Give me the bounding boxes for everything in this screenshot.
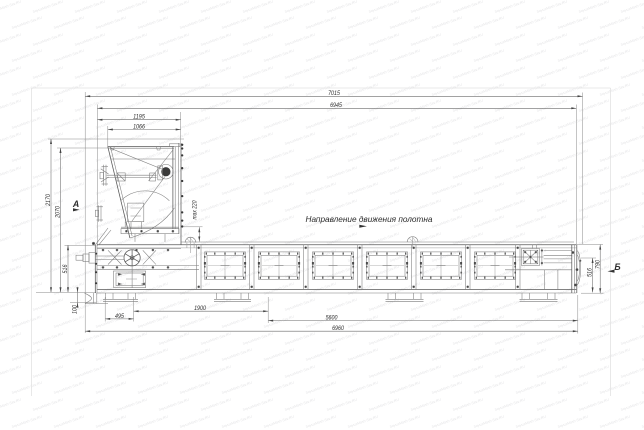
svg-text:SoyuzMash-Sev.RU: SoyuzMash-Sev.RU bbox=[137, 415, 169, 429]
svg-text:516: 516 bbox=[62, 264, 69, 273]
svg-text:SoyuzMash-Sev.RU: SoyuzMash-Sev.RU bbox=[389, 315, 421, 329]
svg-text:SoyuzMash-Sev.RU: SoyuzMash-Sev.RU bbox=[536, 298, 568, 312]
svg-text:SoyuzMash-Sev.RU: SoyuzMash-Sev.RU bbox=[326, 33, 358, 47]
svg-text:6960: 6960 bbox=[332, 325, 344, 332]
svg-text:SoyuzMash-Sev.RU: SoyuzMash-Sev.RU bbox=[242, 66, 274, 80]
svg-text:SoyuzMash-Sev.RU: SoyuzMash-Sev.RU bbox=[221, 415, 253, 429]
svg-text:SoyuzMash-Sev.RU: SoyuzMash-Sev.RU bbox=[620, 332, 644, 346]
svg-text:SoyuzMash-Sev.RU: SoyuzMash-Sev.RU bbox=[284, 166, 316, 180]
svg-text:SoyuzMash-Sev.RU: SoyuzMash-Sev.RU bbox=[74, 298, 106, 312]
svg-text:SoyuzMash-Sev.RU: SoyuzMash-Sev.RU bbox=[452, 365, 484, 379]
svg-text:SoyuzMash-Sev.RU: SoyuzMash-Sev.RU bbox=[263, 16, 295, 30]
svg-text:SoyuzMash-Sev.RU: SoyuzMash-Sev.RU bbox=[515, 415, 547, 429]
svg-text:SoyuzMash-Sev.RU: SoyuzMash-Sev.RU bbox=[200, 398, 232, 412]
svg-text:SoyuzMash-Sev.RU: SoyuzMash-Sev.RU bbox=[221, 315, 253, 329]
svg-text:SoyuzMash-Sev.RU: SoyuzMash-Sev.RU bbox=[116, 33, 148, 47]
svg-text:SoyuzMash-Sev.RU: SoyuzMash-Sev.RU bbox=[557, 215, 589, 229]
svg-text:SoyuzMash-Sev.RU: SoyuzMash-Sev.RU bbox=[599, 116, 631, 130]
svg-text:SoyuzMash-Sev.RU: SoyuzMash-Sev.RU bbox=[347, 16, 379, 30]
svg-text:SoyuzMash-Sev.RU: SoyuzMash-Sev.RU bbox=[578, 232, 610, 246]
svg-text:SoyuzMash-Sev.RU: SoyuzMash-Sev.RU bbox=[158, 0, 190, 14]
svg-text:SoyuzMash-Sev.RU: SoyuzMash-Sev.RU bbox=[32, 99, 64, 113]
svg-text:SoyuzMash-Sev.RU: SoyuzMash-Sev.RU bbox=[263, 381, 295, 395]
svg-text:SoyuzMash-Sev.RU: SoyuzMash-Sev.RU bbox=[620, 33, 644, 47]
svg-text:SoyuzMash-Sev.RU: SoyuzMash-Sev.RU bbox=[305, 282, 337, 296]
svg-text:SoyuzMash-Sev.RU: SoyuzMash-Sev.RU bbox=[305, 415, 337, 429]
svg-text:SoyuzMash-Sev.RU: SoyuzMash-Sev.RU bbox=[368, 232, 400, 246]
svg-text:SoyuzMash-Sev.RU: SoyuzMash-Sev.RU bbox=[242, 398, 274, 412]
svg-text:SoyuzMash-Sev.RU: SoyuzMash-Sev.RU bbox=[431, 83, 463, 97]
svg-text:SoyuzMash-Sev.RU: SoyuzMash-Sev.RU bbox=[431, 381, 463, 395]
svg-text:SoyuzMash-Sev.RU: SoyuzMash-Sev.RU bbox=[0, 215, 1, 229]
svg-text:SoyuzMash-Sev.RU: SoyuzMash-Sev.RU bbox=[326, 132, 358, 146]
svg-text:SoyuzMash-Sev.RU: SoyuzMash-Sev.RU bbox=[431, 116, 463, 130]
svg-text:SoyuzMash-Sev.RU: SoyuzMash-Sev.RU bbox=[599, 16, 631, 30]
svg-text:SoyuzMash-Sev.RU: SoyuzMash-Sev.RU bbox=[431, 16, 463, 30]
svg-text:SoyuzMash-Sev.RU: SoyuzMash-Sev.RU bbox=[179, 49, 211, 63]
svg-text:SoyuzMash-Sev.RU: SoyuzMash-Sev.RU bbox=[11, 116, 43, 130]
svg-text:SoyuzMash-Sev.RU: SoyuzMash-Sev.RU bbox=[452, 99, 484, 113]
svg-text:SoyuzMash-Sev.RU: SoyuzMash-Sev.RU bbox=[494, 33, 526, 47]
svg-text:SoyuzMash-Sev.RU: SoyuzMash-Sev.RU bbox=[473, 16, 505, 30]
svg-text:SoyuzMash-Sev.RU: SoyuzMash-Sev.RU bbox=[368, 365, 400, 379]
svg-text:SoyuzMash-Sev.RU: SoyuzMash-Sev.RU bbox=[536, 398, 568, 412]
svg-text:SoyuzMash-Sev.RU: SoyuzMash-Sev.RU bbox=[53, 16, 85, 30]
svg-text:SoyuzMash-Sev.RU: SoyuzMash-Sev.RU bbox=[620, 166, 644, 180]
svg-text:SoyuzMash-Sev.RU: SoyuzMash-Sev.RU bbox=[32, 33, 64, 47]
svg-text:SoyuzMash-Sev.RU: SoyuzMash-Sev.RU bbox=[200, 166, 232, 180]
svg-text:SoyuzMash-Sev.RU: SoyuzMash-Sev.RU bbox=[473, 348, 505, 362]
svg-text:SoyuzMash-Sev.RU: SoyuzMash-Sev.RU bbox=[557, 315, 589, 329]
svg-text:SoyuzMash-Sev.RU: SoyuzMash-Sev.RU bbox=[0, 149, 1, 163]
svg-text:SoyuzMash-Sev.RU: SoyuzMash-Sev.RU bbox=[0, 282, 1, 296]
svg-text:SoyuzMash-Sev.RU: SoyuzMash-Sev.RU bbox=[536, 66, 568, 80]
svg-text:SoyuzMash-Sev.RU: SoyuzMash-Sev.RU bbox=[326, 166, 358, 180]
svg-text:SoyuzMash-Sev.RU: SoyuzMash-Sev.RU bbox=[284, 398, 316, 412]
svg-text:SoyuzMash-Sev.RU: SoyuzMash-Sev.RU bbox=[263, 315, 295, 329]
svg-text:SoyuzMash-Sev.RU: SoyuzMash-Sev.RU bbox=[557, 83, 589, 97]
svg-text:SoyuzMash-Sev.RU: SoyuzMash-Sev.RU bbox=[347, 49, 379, 63]
svg-text:SoyuzMash-Sev.RU: SoyuzMash-Sev.RU bbox=[431, 149, 463, 163]
svg-text:SoyuzMash-Sev.RU: SoyuzMash-Sev.RU bbox=[578, 166, 610, 180]
svg-text:SoyuzMash-Sev.RU: SoyuzMash-Sev.RU bbox=[0, 99, 22, 113]
svg-text:SoyuzMash-Sev.RU: SoyuzMash-Sev.RU bbox=[326, 66, 358, 80]
svg-text:SoyuzMash-Sev.RU: SoyuzMash-Sev.RU bbox=[515, 149, 547, 163]
svg-text:SoyuzMash-Sev.RU: SoyuzMash-Sev.RU bbox=[305, 49, 337, 63]
svg-text:SoyuzMash-Sev.RU: SoyuzMash-Sev.RU bbox=[599, 381, 631, 395]
svg-text:SoyuzMash-Sev.RU: SoyuzMash-Sev.RU bbox=[368, 99, 400, 113]
svg-text:SoyuzMash-Sev.RU: SoyuzMash-Sev.RU bbox=[0, 16, 1, 30]
svg-text:SoyuzMash-Sev.RU: SoyuzMash-Sev.RU bbox=[74, 33, 106, 47]
svg-text:SoyuzMash-Sev.RU: SoyuzMash-Sev.RU bbox=[494, 398, 526, 412]
svg-text:SoyuzMash-Sev.RU: SoyuzMash-Sev.RU bbox=[305, 149, 337, 163]
svg-text:SoyuzMash-Sev.RU: SoyuzMash-Sev.RU bbox=[11, 315, 43, 329]
svg-text:SoyuzMash-Sev.RU: SoyuzMash-Sev.RU bbox=[0, 49, 1, 63]
svg-text:SoyuzMash-Sev.RU: SoyuzMash-Sev.RU bbox=[242, 132, 274, 146]
svg-text:SoyuzMash-Sev.RU: SoyuzMash-Sev.RU bbox=[557, 49, 589, 63]
svg-text:SoyuzMash-Sev.RU: SoyuzMash-Sev.RU bbox=[599, 49, 631, 63]
svg-text:SoyuzMash-Sev.RU: SoyuzMash-Sev.RU bbox=[494, 0, 526, 14]
svg-text:SoyuzMash-Sev.RU: SoyuzMash-Sev.RU bbox=[452, 66, 484, 80]
svg-text:SoyuzMash-Sev.RU: SoyuzMash-Sev.RU bbox=[599, 315, 631, 329]
svg-text:SoyuzMash-Sev.RU: SoyuzMash-Sev.RU bbox=[599, 215, 631, 229]
svg-text:SoyuzMash-Sev.RU: SoyuzMash-Sev.RU bbox=[179, 149, 211, 163]
svg-text:SoyuzMash-Sev.RU: SoyuzMash-Sev.RU bbox=[326, 398, 358, 412]
svg-text:SoyuzMash-Sev.RU: SoyuzMash-Sev.RU bbox=[368, 0, 400, 14]
svg-text:SoyuzMash-Sev.RU: SoyuzMash-Sev.RU bbox=[494, 232, 526, 246]
svg-text:SoyuzMash-Sev.RU: SoyuzMash-Sev.RU bbox=[0, 132, 22, 146]
svg-text:SoyuzMash-Sev.RU: SoyuzMash-Sev.RU bbox=[158, 265, 190, 279]
svg-text:SoyuzMash-Sev.RU: SoyuzMash-Sev.RU bbox=[95, 83, 127, 97]
svg-text:SoyuzMash-Sev.RU: SoyuzMash-Sev.RU bbox=[0, 66, 22, 80]
svg-text:SoyuzMash-Sev.RU: SoyuzMash-Sev.RU bbox=[11, 49, 43, 63]
svg-text:SoyuzMash-Sev.RU: SoyuzMash-Sev.RU bbox=[200, 199, 232, 213]
svg-text:SoyuzMash-Sev.RU: SoyuzMash-Sev.RU bbox=[473, 116, 505, 130]
svg-text:SoyuzMash-Sev.RU: SoyuzMash-Sev.RU bbox=[263, 415, 295, 429]
svg-text:SoyuzMash-Sev.RU: SoyuzMash-Sev.RU bbox=[410, 398, 442, 412]
svg-text:SoyuzMash-Sev.RU: SoyuzMash-Sev.RU bbox=[116, 298, 148, 312]
svg-text:SoyuzMash-Sev.RU: SoyuzMash-Sev.RU bbox=[557, 282, 589, 296]
svg-text:SoyuzMash-Sev.RU: SoyuzMash-Sev.RU bbox=[158, 66, 190, 80]
svg-text:SoyuzMash-Sev.RU: SoyuzMash-Sev.RU bbox=[137, 16, 169, 30]
svg-text:SoyuzMash-Sev.RU: SoyuzMash-Sev.RU bbox=[32, 66, 64, 80]
svg-text:Направление движения полотна: Направление движения полотна bbox=[306, 214, 433, 224]
svg-text:SoyuzMash-Sev.RU: SoyuzMash-Sev.RU bbox=[368, 332, 400, 346]
svg-text:SoyuzMash-Sev.RU: SoyuzMash-Sev.RU bbox=[410, 132, 442, 146]
svg-text:SoyuzMash-Sev.RU: SoyuzMash-Sev.RU bbox=[347, 149, 379, 163]
svg-text:SoyuzMash-Sev.RU: SoyuzMash-Sev.RU bbox=[599, 149, 631, 163]
svg-text:SoyuzMash-Sev.RU: SoyuzMash-Sev.RU bbox=[347, 116, 379, 130]
svg-text:SoyuzMash-Sev.RU: SoyuzMash-Sev.RU bbox=[284, 332, 316, 346]
svg-text:SoyuzMash-Sev.RU: SoyuzMash-Sev.RU bbox=[389, 16, 421, 30]
svg-text:SoyuzMash-Sev.RU: SoyuzMash-Sev.RU bbox=[578, 33, 610, 47]
svg-text:SoyuzMash-Sev.RU: SoyuzMash-Sev.RU bbox=[515, 16, 547, 30]
svg-text:SoyuzMash-Sev.RU: SoyuzMash-Sev.RU bbox=[263, 348, 295, 362]
svg-text:SoyuzMash-Sev.RU: SoyuzMash-Sev.RU bbox=[137, 83, 169, 97]
svg-text:SoyuzMash-Sev.RU: SoyuzMash-Sev.RU bbox=[620, 132, 644, 146]
svg-text:SoyuzMash-Sev.RU: SoyuzMash-Sev.RU bbox=[431, 415, 463, 429]
svg-text:max 220: max 220 bbox=[193, 200, 199, 220]
svg-text:SoyuzMash-Sev.RU: SoyuzMash-Sev.RU bbox=[179, 348, 211, 362]
svg-text:SoyuzMash-Sev.RU: SoyuzMash-Sev.RU bbox=[95, 49, 127, 63]
svg-text:SoyuzMash-Sev.RU: SoyuzMash-Sev.RU bbox=[368, 33, 400, 47]
svg-text:SoyuzMash-Sev.RU: SoyuzMash-Sev.RU bbox=[368, 298, 400, 312]
svg-text:SoyuzMash-Sev.RU: SoyuzMash-Sev.RU bbox=[263, 49, 295, 63]
svg-text:SoyuzMash-Sev.RU: SoyuzMash-Sev.RU bbox=[431, 282, 463, 296]
svg-text:SoyuzMash-Sev.RU: SoyuzMash-Sev.RU bbox=[578, 199, 610, 213]
svg-text:SoyuzMash-Sev.RU: SoyuzMash-Sev.RU bbox=[137, 182, 169, 196]
svg-text:SoyuzMash-Sev.RU: SoyuzMash-Sev.RU bbox=[473, 83, 505, 97]
svg-text:SoyuzMash-Sev.RU: SoyuzMash-Sev.RU bbox=[515, 116, 547, 130]
svg-text:SoyuzMash-Sev.RU: SoyuzMash-Sev.RU bbox=[578, 398, 610, 412]
svg-text:1900: 1900 bbox=[194, 305, 206, 312]
svg-text:SoyuzMash-Sev.RU: SoyuzMash-Sev.RU bbox=[326, 332, 358, 346]
svg-text:SoyuzMash-Sev.RU: SoyuzMash-Sev.RU bbox=[242, 33, 274, 47]
svg-text:SoyuzMash-Sev.RU: SoyuzMash-Sev.RU bbox=[305, 249, 337, 263]
svg-text:SoyuzMash-Sev.RU: SoyuzMash-Sev.RU bbox=[326, 232, 358, 246]
svg-text:SoyuzMash-Sev.RU: SoyuzMash-Sev.RU bbox=[557, 381, 589, 395]
svg-text:SoyuzMash-Sev.RU: SoyuzMash-Sev.RU bbox=[242, 199, 274, 213]
svg-text:SoyuzMash-Sev.RU: SoyuzMash-Sev.RU bbox=[32, 398, 64, 412]
svg-text:SoyuzMash-Sev.RU: SoyuzMash-Sev.RU bbox=[389, 49, 421, 63]
svg-text:SoyuzMash-Sev.RU: SoyuzMash-Sev.RU bbox=[221, 49, 253, 63]
svg-text:SoyuzMash-Sev.RU: SoyuzMash-Sev.RU bbox=[0, 365, 22, 379]
svg-text:SoyuzMash-Sev.RU: SoyuzMash-Sev.RU bbox=[431, 49, 463, 63]
svg-text:SoyuzMash-Sev.RU: SoyuzMash-Sev.RU bbox=[179, 16, 211, 30]
svg-text:SoyuzMash-Sev.RU: SoyuzMash-Sev.RU bbox=[53, 381, 85, 395]
svg-text:7015: 7015 bbox=[328, 90, 340, 97]
svg-text:SoyuzMash-Sev.RU: SoyuzMash-Sev.RU bbox=[200, 132, 232, 146]
svg-text:SoyuzMash-Sev.RU: SoyuzMash-Sev.RU bbox=[389, 83, 421, 97]
svg-text:SoyuzMash-Sev.RU: SoyuzMash-Sev.RU bbox=[74, 365, 106, 379]
svg-text:SoyuzMash-Sev.RU: SoyuzMash-Sev.RU bbox=[116, 398, 148, 412]
svg-text:SoyuzMash-Sev.RU: SoyuzMash-Sev.RU bbox=[95, 215, 127, 229]
svg-text:Б: Б bbox=[614, 262, 620, 272]
svg-text:SoyuzMash-Sev.RU: SoyuzMash-Sev.RU bbox=[200, 232, 232, 246]
svg-text:SoyuzMash-Sev.RU: SoyuzMash-Sev.RU bbox=[0, 298, 22, 312]
svg-text:SoyuzMash-Sev.RU: SoyuzMash-Sev.RU bbox=[53, 249, 85, 263]
svg-text:SoyuzMash-Sev.RU: SoyuzMash-Sev.RU bbox=[284, 66, 316, 80]
svg-text:SoyuzMash-Sev.RU: SoyuzMash-Sev.RU bbox=[32, 166, 64, 180]
svg-text:SoyuzMash-Sev.RU: SoyuzMash-Sev.RU bbox=[452, 398, 484, 412]
svg-text:SoyuzMash-Sev.RU: SoyuzMash-Sev.RU bbox=[347, 348, 379, 362]
svg-text:SoyuzMash-Sev.RU: SoyuzMash-Sev.RU bbox=[242, 166, 274, 180]
svg-text:SoyuzMash-Sev.RU: SoyuzMash-Sev.RU bbox=[158, 298, 190, 312]
svg-text:SoyuzMash-Sev.RU: SoyuzMash-Sev.RU bbox=[515, 381, 547, 395]
svg-text:SoyuzMash-Sev.RU: SoyuzMash-Sev.RU bbox=[368, 132, 400, 146]
svg-text:SoyuzMash-Sev.RU: SoyuzMash-Sev.RU bbox=[599, 348, 631, 362]
svg-text:495: 495 bbox=[115, 313, 124, 320]
svg-text:SoyuzMash-Sev.RU: SoyuzMash-Sev.RU bbox=[494, 298, 526, 312]
svg-text:SoyuzMash-Sev.RU: SoyuzMash-Sev.RU bbox=[95, 415, 127, 429]
svg-text:SoyuzMash-Sev.RU: SoyuzMash-Sev.RU bbox=[179, 315, 211, 329]
svg-text:SoyuzMash-Sev.RU: SoyuzMash-Sev.RU bbox=[0, 166, 22, 180]
svg-text:SoyuzMash-Sev.RU: SoyuzMash-Sev.RU bbox=[32, 232, 64, 246]
svg-text:SoyuzMash-Sev.RU: SoyuzMash-Sev.RU bbox=[473, 182, 505, 196]
svg-text:SoyuzMash-Sev.RU: SoyuzMash-Sev.RU bbox=[578, 132, 610, 146]
svg-text:SoyuzMash-Sev.RU: SoyuzMash-Sev.RU bbox=[179, 381, 211, 395]
svg-text:SoyuzMash-Sev.RU: SoyuzMash-Sev.RU bbox=[158, 99, 190, 113]
svg-text:SoyuzMash-Sev.RU: SoyuzMash-Sev.RU bbox=[74, 0, 106, 14]
svg-text:SoyuzMash-Sev.RU: SoyuzMash-Sev.RU bbox=[53, 415, 85, 429]
svg-text:SoyuzMash-Sev.RU: SoyuzMash-Sev.RU bbox=[578, 66, 610, 80]
svg-text:SoyuzMash-Sev.RU: SoyuzMash-Sev.RU bbox=[158, 365, 190, 379]
svg-text:SoyuzMash-Sev.RU: SoyuzMash-Sev.RU bbox=[368, 166, 400, 180]
svg-text:SoyuzMash-Sev.RU: SoyuzMash-Sev.RU bbox=[221, 215, 253, 229]
svg-text:SoyuzMash-Sev.RU: SoyuzMash-Sev.RU bbox=[32, 365, 64, 379]
svg-text:SoyuzMash-Sev.RU: SoyuzMash-Sev.RU bbox=[410, 66, 442, 80]
svg-text:А: А bbox=[72, 199, 79, 209]
svg-text:SoyuzMash-Sev.RU: SoyuzMash-Sev.RU bbox=[53, 149, 85, 163]
svg-text:SoyuzMash-Sev.RU: SoyuzMash-Sev.RU bbox=[11, 215, 43, 229]
svg-text:SoyuzMash-Sev.RU: SoyuzMash-Sev.RU bbox=[116, 66, 148, 80]
svg-text:SoyuzMash-Sev.RU: SoyuzMash-Sev.RU bbox=[368, 66, 400, 80]
svg-text:SoyuzMash-Sev.RU: SoyuzMash-Sev.RU bbox=[263, 182, 295, 196]
svg-text:SoyuzMash-Sev.RU: SoyuzMash-Sev.RU bbox=[179, 249, 211, 263]
svg-text:SoyuzMash-Sev.RU: SoyuzMash-Sev.RU bbox=[620, 298, 644, 312]
svg-text:SoyuzMash-Sev.RU: SoyuzMash-Sev.RU bbox=[494, 132, 526, 146]
svg-text:SoyuzMash-Sev.RU: SoyuzMash-Sev.RU bbox=[473, 381, 505, 395]
svg-text:SoyuzMash-Sev.RU: SoyuzMash-Sev.RU bbox=[536, 265, 568, 279]
svg-text:SoyuzMash-Sev.RU: SoyuzMash-Sev.RU bbox=[0, 33, 22, 47]
svg-text:SoyuzMash-Sev.RU: SoyuzMash-Sev.RU bbox=[347, 415, 379, 429]
svg-text:SoyuzMash-Sev.RU: SoyuzMash-Sev.RU bbox=[494, 365, 526, 379]
svg-text:SoyuzMash-Sev.RU: SoyuzMash-Sev.RU bbox=[389, 182, 421, 196]
svg-text:SoyuzMash-Sev.RU: SoyuzMash-Sev.RU bbox=[284, 232, 316, 246]
svg-text:SoyuzMash-Sev.RU: SoyuzMash-Sev.RU bbox=[158, 332, 190, 346]
svg-text:SoyuzMash-Sev.RU: SoyuzMash-Sev.RU bbox=[116, 0, 148, 14]
svg-text:SoyuzMash-Sev.RU: SoyuzMash-Sev.RU bbox=[389, 149, 421, 163]
svg-text:SoyuzMash-Sev.RU: SoyuzMash-Sev.RU bbox=[536, 99, 568, 113]
svg-text:SoyuzMash-Sev.RU: SoyuzMash-Sev.RU bbox=[74, 66, 106, 80]
svg-text:1195: 1195 bbox=[133, 114, 145, 121]
svg-text:SoyuzMash-Sev.RU: SoyuzMash-Sev.RU bbox=[578, 99, 610, 113]
svg-text:SoyuzMash-Sev.RU: SoyuzMash-Sev.RU bbox=[431, 249, 463, 263]
svg-text:SoyuzMash-Sev.RU: SoyuzMash-Sev.RU bbox=[620, 66, 644, 80]
svg-text:SoyuzMash-Sev.RU: SoyuzMash-Sev.RU bbox=[536, 365, 568, 379]
svg-text:SoyuzMash-Sev.RU: SoyuzMash-Sev.RU bbox=[179, 415, 211, 429]
svg-text:SoyuzMash-Sev.RU: SoyuzMash-Sev.RU bbox=[536, 132, 568, 146]
svg-text:SoyuzMash-Sev.RU: SoyuzMash-Sev.RU bbox=[263, 116, 295, 130]
svg-text:SoyuzMash-Sev.RU: SoyuzMash-Sev.RU bbox=[347, 381, 379, 395]
svg-text:SoyuzMash-Sev.RU: SoyuzMash-Sev.RU bbox=[473, 215, 505, 229]
svg-text:SoyuzMash-Sev.RU: SoyuzMash-Sev.RU bbox=[95, 16, 127, 30]
svg-text:SoyuzMash-Sev.RU: SoyuzMash-Sev.RU bbox=[410, 298, 442, 312]
svg-text:5600: 5600 bbox=[326, 315, 338, 322]
svg-text:SoyuzMash-Sev.RU: SoyuzMash-Sev.RU bbox=[578, 332, 610, 346]
svg-text:SoyuzMash-Sev.RU: SoyuzMash-Sev.RU bbox=[473, 249, 505, 263]
svg-text:SoyuzMash-Sev.RU: SoyuzMash-Sev.RU bbox=[263, 149, 295, 163]
svg-text:SoyuzMash-Sev.RU: SoyuzMash-Sev.RU bbox=[0, 116, 1, 130]
svg-text:SoyuzMash-Sev.RU: SoyuzMash-Sev.RU bbox=[95, 381, 127, 395]
svg-text:SoyuzMash-Sev.RU: SoyuzMash-Sev.RU bbox=[389, 415, 421, 429]
svg-text:6945: 6945 bbox=[330, 102, 342, 109]
svg-text:SoyuzMash-Sev.RU: SoyuzMash-Sev.RU bbox=[494, 166, 526, 180]
svg-text:SoyuzMash-Sev.RU: SoyuzMash-Sev.RU bbox=[620, 199, 644, 213]
svg-text:SoyuzMash-Sev.RU: SoyuzMash-Sev.RU bbox=[536, 33, 568, 47]
svg-text:SoyuzMash-Sev.RU: SoyuzMash-Sev.RU bbox=[305, 182, 337, 196]
svg-text:SoyuzMash-Sev.RU: SoyuzMash-Sev.RU bbox=[452, 132, 484, 146]
svg-text:SoyuzMash-Sev.RU: SoyuzMash-Sev.RU bbox=[137, 315, 169, 329]
svg-text:SoyuzMash-Sev.RU: SoyuzMash-Sev.RU bbox=[620, 265, 644, 279]
svg-text:SoyuzMash-Sev.RU: SoyuzMash-Sev.RU bbox=[74, 332, 106, 346]
svg-text:SoyuzMash-Sev.RU: SoyuzMash-Sev.RU bbox=[11, 249, 43, 263]
svg-text:SoyuzMash-Sev.RU: SoyuzMash-Sev.RU bbox=[326, 0, 358, 14]
svg-text:SoyuzMash-Sev.RU: SoyuzMash-Sev.RU bbox=[578, 298, 610, 312]
svg-text:SoyuzMash-Sev.RU: SoyuzMash-Sev.RU bbox=[347, 282, 379, 296]
svg-text:SoyuzMash-Sev.RU: SoyuzMash-Sev.RU bbox=[137, 348, 169, 362]
svg-text:SoyuzMash-Sev.RU: SoyuzMash-Sev.RU bbox=[221, 249, 253, 263]
svg-text:SoyuzMash-Sev.RU: SoyuzMash-Sev.RU bbox=[326, 298, 358, 312]
svg-text:SoyuzMash-Sev.RU: SoyuzMash-Sev.RU bbox=[74, 99, 106, 113]
svg-text:SoyuzMash-Sev.RU: SoyuzMash-Sev.RU bbox=[536, 0, 568, 14]
svg-text:SoyuzMash-Sev.RU: SoyuzMash-Sev.RU bbox=[620, 365, 644, 379]
svg-text:SoyuzMash-Sev.RU: SoyuzMash-Sev.RU bbox=[284, 132, 316, 146]
svg-text:SoyuzMash-Sev.RU: SoyuzMash-Sev.RU bbox=[368, 265, 400, 279]
svg-text:SoyuzMash-Sev.RU: SoyuzMash-Sev.RU bbox=[263, 83, 295, 97]
svg-text:SoyuzMash-Sev.RU: SoyuzMash-Sev.RU bbox=[32, 265, 64, 279]
svg-text:SoyuzMash-Sev.RU: SoyuzMash-Sev.RU bbox=[536, 232, 568, 246]
svg-text:SoyuzMash-Sev.RU: SoyuzMash-Sev.RU bbox=[0, 398, 22, 412]
svg-text:SoyuzMash-Sev.RU: SoyuzMash-Sev.RU bbox=[53, 348, 85, 362]
svg-text:SoyuzMash-Sev.RU: SoyuzMash-Sev.RU bbox=[473, 415, 505, 429]
svg-text:SoyuzMash-Sev.RU: SoyuzMash-Sev.RU bbox=[410, 99, 442, 113]
svg-text:SoyuzMash-Sev.RU: SoyuzMash-Sev.RU bbox=[242, 298, 274, 312]
svg-text:SoyuzMash-Sev.RU: SoyuzMash-Sev.RU bbox=[95, 282, 127, 296]
svg-text:SoyuzMash-Sev.RU: SoyuzMash-Sev.RU bbox=[116, 332, 148, 346]
svg-text:SoyuzMash-Sev.RU: SoyuzMash-Sev.RU bbox=[0, 332, 22, 346]
svg-text:SoyuzMash-Sev.RU: SoyuzMash-Sev.RU bbox=[0, 265, 22, 279]
svg-text:SoyuzMash-Sev.RU: SoyuzMash-Sev.RU bbox=[0, 182, 1, 196]
svg-text:SoyuzMash-Sev.RU: SoyuzMash-Sev.RU bbox=[452, 0, 484, 14]
svg-text:SoyuzMash-Sev.RU: SoyuzMash-Sev.RU bbox=[389, 348, 421, 362]
svg-text:SoyuzMash-Sev.RU: SoyuzMash-Sev.RU bbox=[137, 49, 169, 63]
svg-text:SoyuzMash-Sev.RU: SoyuzMash-Sev.RU bbox=[494, 99, 526, 113]
svg-text:SoyuzMash-Sev.RU: SoyuzMash-Sev.RU bbox=[410, 265, 442, 279]
svg-text:SoyuzMash-Sev.RU: SoyuzMash-Sev.RU bbox=[452, 332, 484, 346]
svg-text:SoyuzMash-Sev.RU: SoyuzMash-Sev.RU bbox=[284, 365, 316, 379]
svg-text:SoyuzMash-Sev.RU: SoyuzMash-Sev.RU bbox=[578, 0, 610, 14]
svg-text:SoyuzMash-Sev.RU: SoyuzMash-Sev.RU bbox=[0, 415, 1, 429]
svg-text:SoyuzMash-Sev.RU: SoyuzMash-Sev.RU bbox=[368, 199, 400, 213]
svg-text:SoyuzMash-Sev.RU: SoyuzMash-Sev.RU bbox=[53, 83, 85, 97]
svg-text:SoyuzMash-Sev.RU: SoyuzMash-Sev.RU bbox=[11, 83, 43, 97]
svg-text:SoyuzMash-Sev.RU: SoyuzMash-Sev.RU bbox=[284, 199, 316, 213]
svg-text:SoyuzMash-Sev.RU: SoyuzMash-Sev.RU bbox=[494, 66, 526, 80]
svg-text:SoyuzMash-Sev.RU: SoyuzMash-Sev.RU bbox=[578, 365, 610, 379]
svg-text:SoyuzMash-Sev.RU: SoyuzMash-Sev.RU bbox=[473, 49, 505, 63]
svg-text:516: 516 bbox=[587, 268, 594, 277]
svg-text:SoyuzMash-Sev.RU: SoyuzMash-Sev.RU bbox=[620, 0, 644, 14]
svg-text:SoyuzMash-Sev.RU: SoyuzMash-Sev.RU bbox=[305, 348, 337, 362]
svg-text:1066: 1066 bbox=[133, 123, 145, 130]
svg-text:SoyuzMash-Sev.RU: SoyuzMash-Sev.RU bbox=[284, 298, 316, 312]
svg-text:SoyuzMash-Sev.RU: SoyuzMash-Sev.RU bbox=[473, 149, 505, 163]
svg-text:SoyuzMash-Sev.RU: SoyuzMash-Sev.RU bbox=[347, 83, 379, 97]
svg-text:SoyuzMash-Sev.RU: SoyuzMash-Sev.RU bbox=[242, 0, 274, 14]
svg-text:SoyuzMash-Sev.RU: SoyuzMash-Sev.RU bbox=[494, 265, 526, 279]
svg-text:SoyuzMash-Sev.RU: SoyuzMash-Sev.RU bbox=[452, 298, 484, 312]
svg-text:SoyuzMash-Sev.RU: SoyuzMash-Sev.RU bbox=[347, 249, 379, 263]
svg-text:SoyuzMash-Sev.RU: SoyuzMash-Sev.RU bbox=[452, 265, 484, 279]
svg-text:SoyuzMash-Sev.RU: SoyuzMash-Sev.RU bbox=[53, 315, 85, 329]
svg-text:SoyuzMash-Sev.RU: SoyuzMash-Sev.RU bbox=[0, 381, 1, 395]
svg-text:SoyuzMash-Sev.RU: SoyuzMash-Sev.RU bbox=[263, 282, 295, 296]
svg-text:SoyuzMash-Sev.RU: SoyuzMash-Sev.RU bbox=[305, 116, 337, 130]
svg-text:SoyuzMash-Sev.RU: SoyuzMash-Sev.RU bbox=[95, 116, 127, 130]
svg-text:SoyuzMash-Sev.RU: SoyuzMash-Sev.RU bbox=[494, 199, 526, 213]
svg-text:SoyuzMash-Sev.RU: SoyuzMash-Sev.RU bbox=[515, 182, 547, 196]
svg-text:SoyuzMash-Sev.RU: SoyuzMash-Sev.RU bbox=[347, 182, 379, 196]
svg-text:SoyuzMash-Sev.RU: SoyuzMash-Sev.RU bbox=[200, 33, 232, 47]
svg-text:SoyuzMash-Sev.RU: SoyuzMash-Sev.RU bbox=[620, 232, 644, 246]
svg-text:SoyuzMash-Sev.RU: SoyuzMash-Sev.RU bbox=[158, 33, 190, 47]
svg-text:SoyuzMash-Sev.RU: SoyuzMash-Sev.RU bbox=[347, 315, 379, 329]
svg-text:SoyuzMash-Sev.RU: SoyuzMash-Sev.RU bbox=[137, 381, 169, 395]
svg-text:SoyuzMash-Sev.RU: SoyuzMash-Sev.RU bbox=[200, 332, 232, 346]
svg-text:SoyuzMash-Sev.RU: SoyuzMash-Sev.RU bbox=[74, 232, 106, 246]
svg-text:SoyuzMash-Sev.RU: SoyuzMash-Sev.RU bbox=[74, 166, 106, 180]
svg-text:SoyuzMash-Sev.RU: SoyuzMash-Sev.RU bbox=[452, 199, 484, 213]
svg-text:SoyuzMash-Sev.RU: SoyuzMash-Sev.RU bbox=[305, 16, 337, 30]
svg-text:SoyuzMash-Sev.RU: SoyuzMash-Sev.RU bbox=[284, 99, 316, 113]
svg-text:SoyuzMash-Sev.RU: SoyuzMash-Sev.RU bbox=[0, 232, 22, 246]
svg-text:SoyuzMash-Sev.RU: SoyuzMash-Sev.RU bbox=[221, 116, 253, 130]
svg-text:SoyuzMash-Sev.RU: SoyuzMash-Sev.RU bbox=[221, 348, 253, 362]
svg-text:SoyuzMash-Sev.RU: SoyuzMash-Sev.RU bbox=[32, 298, 64, 312]
svg-text:SoyuzMash-Sev.RU: SoyuzMash-Sev.RU bbox=[515, 348, 547, 362]
svg-text:SoyuzMash-Sev.RU: SoyuzMash-Sev.RU bbox=[431, 348, 463, 362]
